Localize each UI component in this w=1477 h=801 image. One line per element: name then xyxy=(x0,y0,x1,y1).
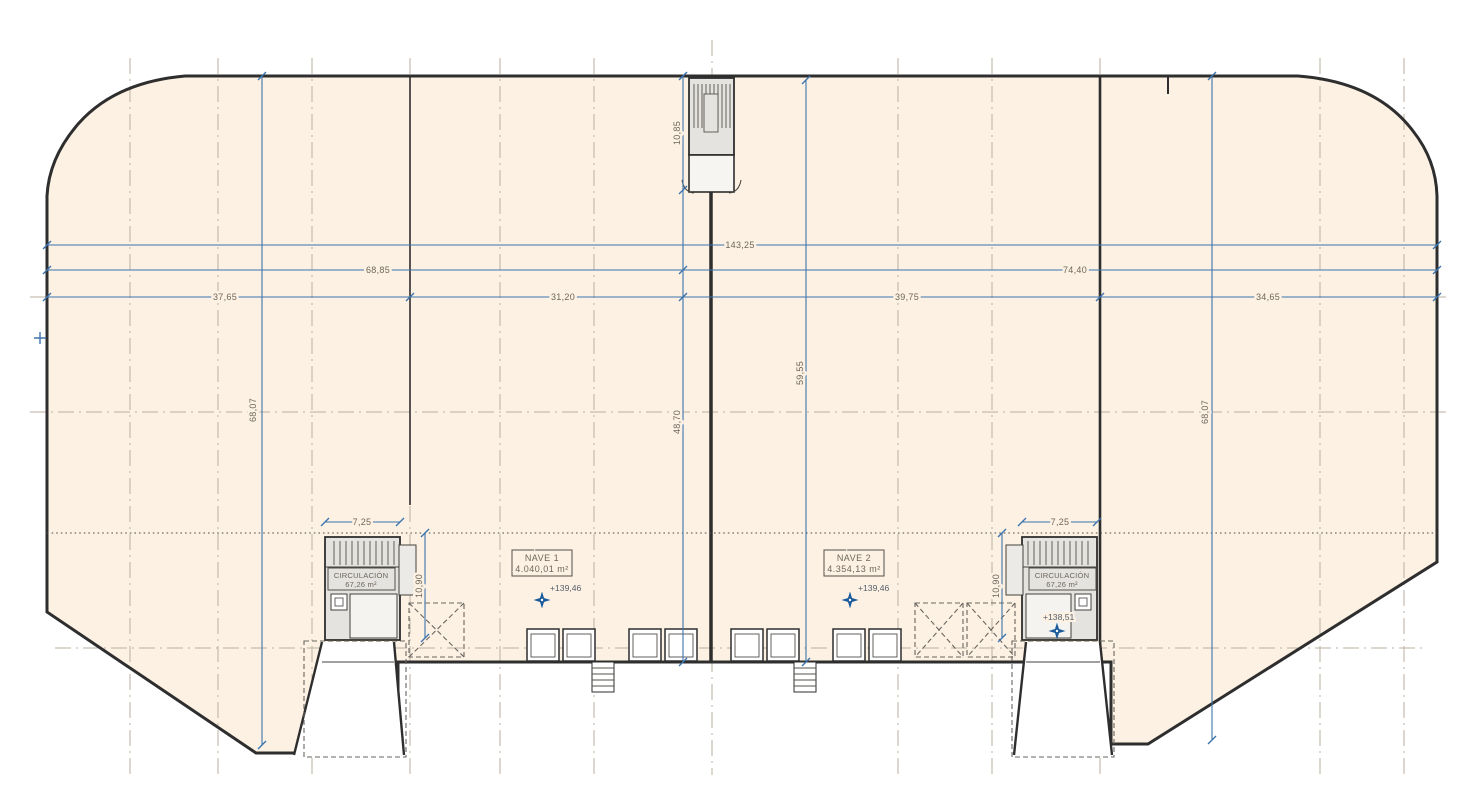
circulation-right-name: CIRCULACIÓN xyxy=(1035,571,1090,580)
dim-top-core-depth: 10,85 xyxy=(672,121,682,145)
dim-core-left-width: 7,25 xyxy=(353,517,372,527)
dim-bay-b: 31,20 xyxy=(551,292,575,302)
dim-depth-left: 68,07 xyxy=(248,398,258,422)
left-elevator xyxy=(331,594,347,610)
dim-core-right-width: 7,25 xyxy=(1051,517,1070,527)
circulation-right-area: 67,26 m² xyxy=(1046,580,1078,589)
right-elevator xyxy=(1075,594,1091,610)
circulation-left-name: CIRCULACIÓN xyxy=(334,571,389,580)
top-stair-core xyxy=(682,78,741,193)
dim-right-span: 74,40 xyxy=(1063,265,1087,275)
circulation-right-level: +138,51 xyxy=(1043,612,1075,622)
dim-bay-a: 37,65 xyxy=(213,292,237,302)
floor-plan-drawing: 143,25 68,85 74,40 37,65 31,20 39,75 34,… xyxy=(0,0,1477,801)
nave2-name: NAVE 2 xyxy=(837,553,871,563)
dim-core-right-depth: 10,90 xyxy=(991,574,1001,598)
nave2-level: +139,46 xyxy=(858,583,890,593)
nave2-area: 4.354,13 m² xyxy=(827,564,881,574)
left-edge-cross-marker xyxy=(34,332,46,344)
circulation-left-area: 67,26 m² xyxy=(345,580,377,589)
nave1-name: NAVE 1 xyxy=(525,553,559,563)
exterior-stairs xyxy=(592,662,816,692)
dim-depth-nave2: 59,55 xyxy=(795,361,805,385)
right-entrance-ramp xyxy=(1012,641,1114,757)
floor-plan-page: 143,25 68,85 74,40 37,65 31,20 39,75 34,… xyxy=(0,0,1477,801)
dim-total-width: 143,25 xyxy=(725,240,754,250)
dim-core-left-depth: 10,90 xyxy=(414,574,424,598)
dim-left-span: 68,85 xyxy=(366,265,390,275)
dim-bay-c: 39,75 xyxy=(895,292,919,302)
nave1-level: +139,46 xyxy=(550,583,582,593)
dim-depth-center: 48,70 xyxy=(672,410,682,434)
nave1-area: 4.040,01 m² xyxy=(515,564,569,574)
dim-bay-d: 34,65 xyxy=(1256,292,1280,302)
dim-depth-right: 68,07 xyxy=(1200,400,1210,424)
